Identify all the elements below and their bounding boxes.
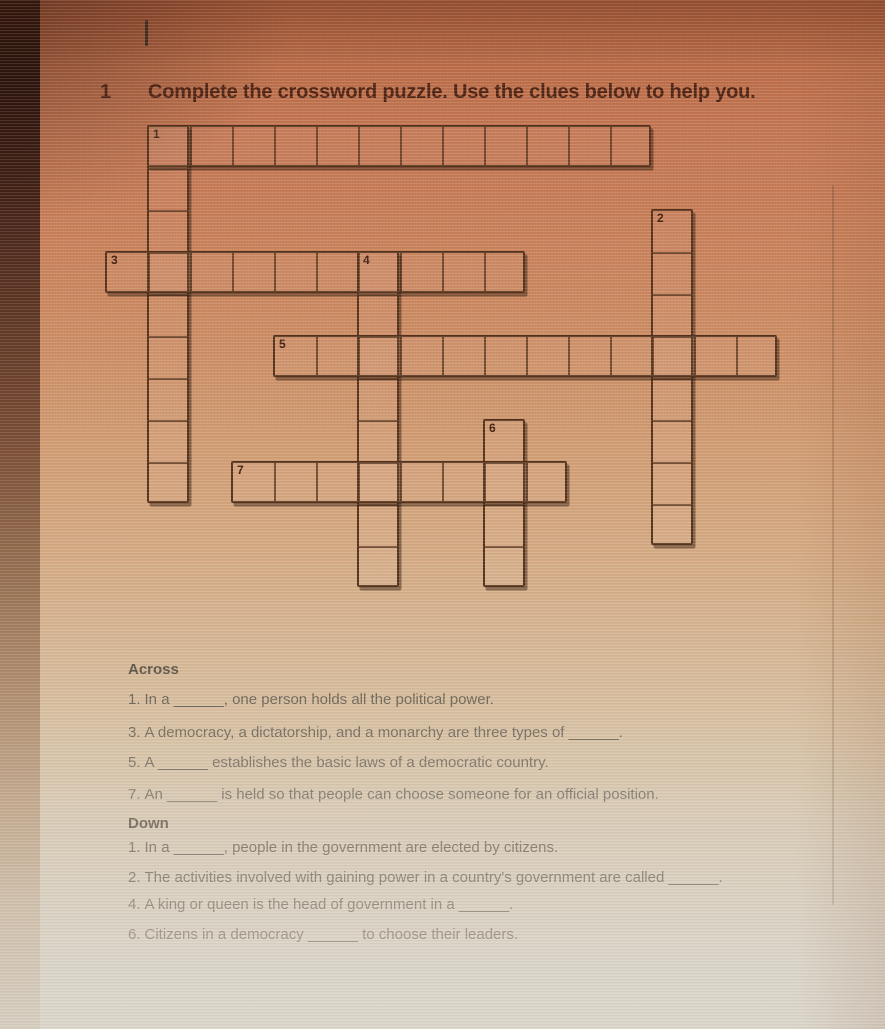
crossword-word-7-across: 7 xyxy=(231,461,567,503)
worksheet-page-photo: 1 Complete the crossword puzzle. Use the… xyxy=(0,0,885,1029)
cell-divider xyxy=(358,463,360,501)
cell-divider xyxy=(736,337,738,375)
clue-across-5: 5.A ______ establishes the basic laws of… xyxy=(128,754,549,771)
cell-divider xyxy=(149,462,187,464)
cell-divider xyxy=(359,420,397,422)
clue-text: A democracy, a dictatorship, and a monar… xyxy=(145,724,623,741)
cell-divider xyxy=(400,253,402,291)
cell-divider xyxy=(400,463,402,501)
across-heading: Across xyxy=(128,661,179,678)
cell-divider xyxy=(359,546,397,548)
cell-divider xyxy=(694,337,696,375)
clue-number: 1. xyxy=(128,839,141,856)
cell-divider xyxy=(232,127,234,165)
cell-divider xyxy=(148,253,150,291)
cell-number: 2 xyxy=(657,212,664,225)
cell-divider xyxy=(190,253,192,291)
clue-down-2: 2.The activities involved with gaining p… xyxy=(128,869,723,886)
crossword-word-2-down: 2 xyxy=(651,209,693,545)
cell-number: 5 xyxy=(279,338,286,351)
clue-number: 6. xyxy=(128,926,141,943)
cell-divider xyxy=(149,378,187,380)
cell-divider xyxy=(653,504,691,506)
cell-divider xyxy=(526,127,528,165)
cell-number: 4 xyxy=(363,254,370,267)
cell-number: 7 xyxy=(237,464,244,477)
clue-text: In a ______, one person holds all the po… xyxy=(145,691,494,708)
cell-divider xyxy=(359,294,397,296)
crossword-word-5-across: 5 xyxy=(273,335,777,377)
clue-list: Across 1.In a ______, one person holds a… xyxy=(128,655,868,955)
cell-divider xyxy=(485,546,523,548)
cell-divider xyxy=(316,463,318,501)
cell-divider xyxy=(232,253,234,291)
crossword-word-4-down: 4 xyxy=(357,251,399,587)
clue-text: A ______ establishes the basic laws of a… xyxy=(145,754,549,771)
cell-divider xyxy=(484,127,486,165)
cell-divider xyxy=(653,420,691,422)
cell-divider xyxy=(316,337,318,375)
cell-divider xyxy=(274,253,276,291)
clue-text: In a ______, people in the government ar… xyxy=(145,839,559,856)
cell-divider xyxy=(274,463,276,501)
cell-number: 6 xyxy=(489,422,496,435)
cell-divider xyxy=(442,253,444,291)
crossword-word-1-across: 1 xyxy=(147,125,651,167)
clue-number: 4. xyxy=(128,896,141,913)
cell-divider xyxy=(149,420,187,422)
down-heading: Down xyxy=(128,815,169,832)
clue-across-3: 3.A democracy, a dictatorship, and a mon… xyxy=(128,724,623,741)
cell-divider xyxy=(653,252,691,254)
clue-down-6: 6.Citizens in a democracy ______ to choo… xyxy=(128,926,518,943)
cell-divider xyxy=(358,337,360,375)
cell-divider xyxy=(442,463,444,501)
cell-divider xyxy=(190,127,192,165)
clue-text: An ______ is held so that people can cho… xyxy=(145,786,659,803)
cell-divider xyxy=(653,294,691,296)
clue-text: Citizens in a democracy ______ to choose… xyxy=(145,926,519,943)
cell-divider xyxy=(610,337,612,375)
crossword-word-6-down: 6 xyxy=(483,419,525,587)
crossword-word-3-across: 3 xyxy=(105,251,525,293)
cell-divider xyxy=(610,127,612,165)
cell-divider xyxy=(316,253,318,291)
cell-divider xyxy=(484,253,486,291)
cell-divider xyxy=(484,463,486,501)
cell-divider xyxy=(359,504,397,506)
exercise-title: Complete the crossword puzzle. Use the c… xyxy=(148,81,756,104)
cell-divider xyxy=(400,127,402,165)
cell-divider xyxy=(526,463,528,501)
clue-number: 2. xyxy=(128,869,141,886)
crossword-word-1-down xyxy=(147,125,189,503)
clue-down-1: 1.In a ______, people in the government … xyxy=(128,839,558,856)
clue-number: 5. xyxy=(128,754,141,771)
cell-divider xyxy=(274,127,276,165)
cell-divider xyxy=(149,336,187,338)
cell-divider xyxy=(359,378,397,380)
text-cursor-mark xyxy=(145,20,148,46)
cell-divider xyxy=(149,210,187,212)
clue-number: 7. xyxy=(128,786,141,803)
cell-divider xyxy=(316,127,318,165)
clue-text: The activities involved with gaining pow… xyxy=(145,869,723,886)
cell-divider xyxy=(526,337,528,375)
cell-divider xyxy=(653,462,691,464)
cell-divider xyxy=(400,337,402,375)
cell-divider xyxy=(652,337,654,375)
crossword-grid: 1234567 xyxy=(105,125,819,629)
clue-across-7: 7.An ______ is held so that people can c… xyxy=(128,786,659,803)
clue-text: A king or queen is the head of governmen… xyxy=(145,896,514,913)
cell-divider xyxy=(442,337,444,375)
page-edge-shadow xyxy=(0,0,40,1029)
cell-divider xyxy=(485,504,523,506)
cell-divider xyxy=(568,337,570,375)
cell-divider xyxy=(568,127,570,165)
cell-divider xyxy=(442,127,444,165)
cell-number: 3 xyxy=(111,254,118,267)
cell-divider xyxy=(149,294,187,296)
section-number: 1 xyxy=(100,81,111,104)
cell-divider xyxy=(149,168,187,170)
clue-number: 1. xyxy=(128,691,141,708)
clue-number: 3. xyxy=(128,724,141,741)
cell-divider xyxy=(358,127,360,165)
clue-down-4: 4.A king or queen is the head of governm… xyxy=(128,896,513,913)
clue-across-1: 1.In a ______, one person holds all the … xyxy=(128,691,494,708)
cell-divider xyxy=(484,337,486,375)
cell-divider xyxy=(653,378,691,380)
